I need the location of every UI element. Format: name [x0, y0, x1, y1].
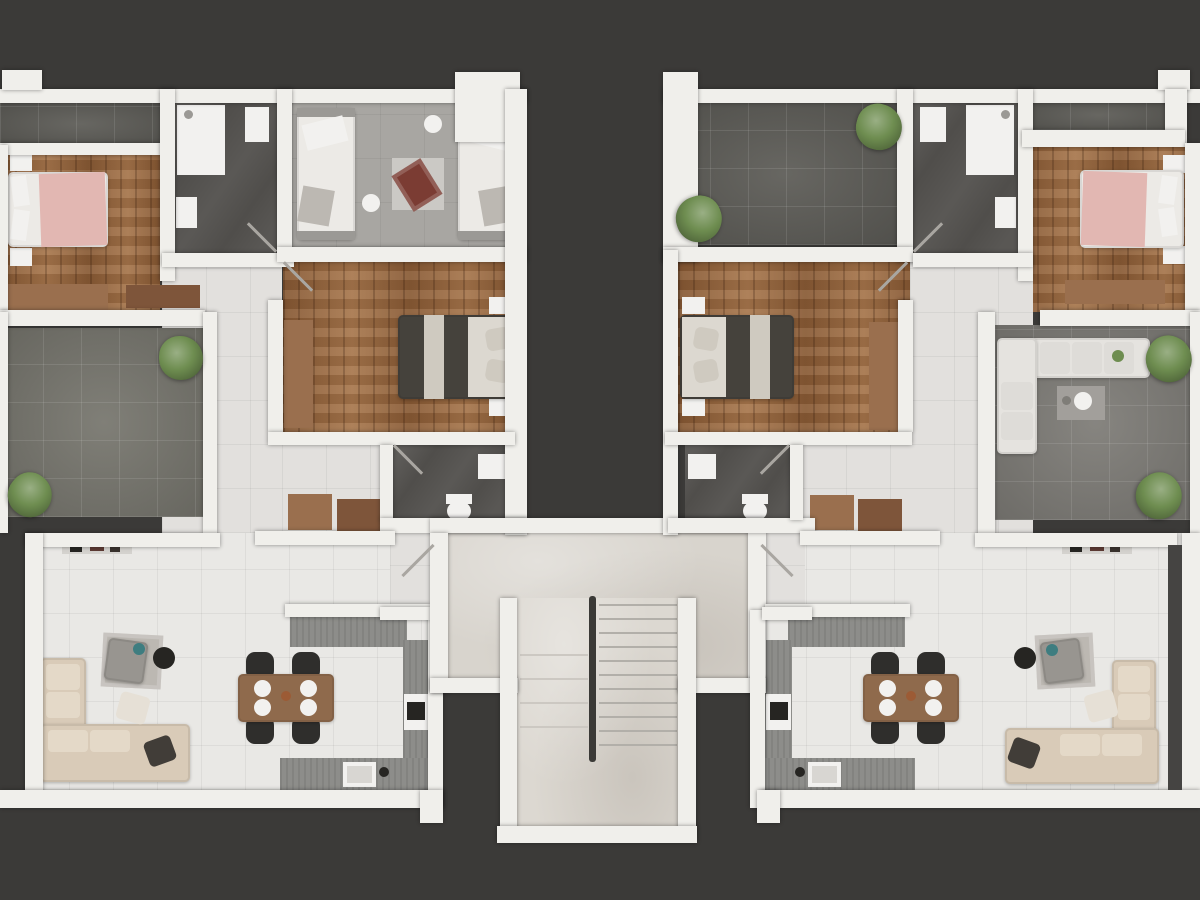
stair-tread: [599, 730, 677, 732]
stair-tread-faint: [520, 702, 588, 704]
sofa-cushion: [46, 664, 80, 690]
stair-tread: [599, 660, 677, 662]
terrace-strip-right-floor: [1032, 100, 1165, 130]
kitchen-counter: [290, 617, 407, 647]
shoe-cabinet: [858, 499, 902, 534]
wall: [2, 70, 42, 90]
wall: [1040, 310, 1200, 326]
side-table: [1014, 647, 1036, 669]
cushion-teal: [1046, 644, 1058, 656]
wall: [668, 518, 815, 533]
plate: [925, 680, 942, 697]
wall: [975, 533, 1177, 547]
sofa-cushion: [1060, 734, 1100, 756]
wall: [505, 89, 527, 535]
wall: [800, 531, 940, 545]
bed-pillow: [692, 358, 719, 384]
plate: [254, 680, 271, 697]
shower-head: [1001, 110, 1010, 119]
wall: [25, 533, 43, 795]
shoe-cabinet: [810, 495, 854, 530]
wall-shelf: [478, 454, 506, 479]
wardrobe: [869, 322, 898, 430]
bed-runner: [750, 315, 770, 399]
table-centerpiece: [281, 691, 291, 701]
cooktop: [770, 702, 788, 720]
stair-tread-faint: [520, 654, 588, 656]
nightstand: [682, 399, 705, 416]
plate: [879, 699, 896, 716]
sink-basin: [347, 766, 372, 783]
bed-throw: [297, 185, 335, 226]
stair-tread-faint: [520, 726, 588, 728]
plate: [925, 699, 942, 716]
bed-blanket-pink: [1081, 171, 1148, 247]
nightstand: [10, 153, 32, 171]
armchair: [1039, 637, 1084, 684]
dresser: [0, 284, 108, 310]
sofa-cushion: [1001, 412, 1033, 440]
wall: [25, 533, 220, 547]
shoe-cabinet: [288, 494, 332, 530]
table-tray: [1074, 392, 1092, 410]
shower-head: [184, 110, 193, 119]
side-table: [153, 647, 175, 669]
wall: [762, 790, 1200, 808]
sofa-cushion: [48, 730, 88, 752]
wall: [663, 247, 913, 262]
plate: [879, 680, 896, 697]
wall: [0, 312, 8, 533]
wall: [268, 300, 283, 432]
wall: [0, 145, 8, 312]
wall: [420, 790, 443, 823]
wall: [762, 607, 812, 620]
wall: [663, 89, 1200, 103]
wall: [277, 247, 527, 262]
pouf: [424, 115, 442, 133]
wall: [1158, 70, 1190, 90]
kitchen-counter: [788, 617, 905, 647]
stair-tread: [599, 604, 677, 606]
stair-tread: [599, 744, 677, 746]
wall: [750, 610, 765, 808]
wall: [380, 445, 393, 520]
wall: [897, 89, 913, 262]
wall: [663, 250, 678, 535]
stair-railing: [589, 596, 596, 762]
floor-plan-render: [0, 0, 1200, 900]
sofa-cushion: [1102, 734, 1142, 756]
washing-machine: [920, 107, 946, 142]
stair-tread: [599, 632, 677, 634]
stair-tread: [599, 674, 677, 676]
entry-corridor-right-floor: [762, 533, 805, 610]
wall-shelf: [688, 454, 716, 479]
wall: [0, 143, 162, 155]
table-centerpiece: [906, 691, 916, 701]
wall: [1182, 533, 1200, 795]
sofa-cushion: [1118, 694, 1150, 720]
wall: [1185, 143, 1200, 315]
kids-bed-headboard: [297, 108, 355, 117]
wall: [380, 607, 430, 620]
wall: [898, 300, 913, 432]
sofa-decor-plant: [1112, 350, 1124, 362]
wall: [203, 312, 217, 533]
plate: [300, 699, 317, 716]
bed-blanket-pink: [39, 172, 108, 247]
wall: [1022, 130, 1185, 147]
window-glass-band: [1168, 545, 1182, 790]
sofa-cushion: [1001, 382, 1033, 410]
wall: [500, 598, 517, 838]
plate: [300, 680, 317, 697]
wall: [790, 445, 803, 520]
sofa-cushion: [1040, 342, 1070, 374]
wall: [277, 89, 292, 262]
wall: [162, 253, 294, 267]
bed-pillow: [692, 326, 719, 352]
wardrobe: [284, 320, 313, 428]
wall: [1190, 312, 1200, 533]
washing-machine: [245, 107, 269, 142]
wall: [268, 432, 515, 445]
stair-tread: [599, 702, 677, 704]
wall: [913, 253, 1033, 267]
terrace-strip-left-floor: [0, 103, 160, 145]
sofa-cushion: [46, 692, 80, 718]
sofa-cushion: [90, 730, 130, 752]
wall: [255, 531, 395, 545]
dresser: [126, 285, 200, 308]
shoe-cabinet: [337, 499, 381, 534]
stair-tread: [599, 688, 677, 690]
wall: [978, 312, 995, 533]
potted-plant: [159, 336, 203, 380]
wall: [757, 790, 780, 823]
wall: [430, 533, 448, 693]
cushion-teal: [133, 643, 145, 655]
cooktop: [407, 702, 425, 720]
table-decor: [1062, 396, 1071, 405]
wall: [497, 826, 697, 843]
sink-basin: [812, 766, 837, 783]
sofa-cushion: [1072, 342, 1102, 374]
kids-bed-footboard: [297, 231, 355, 240]
wall: [678, 598, 696, 838]
pouf: [362, 194, 380, 212]
nightstand: [10, 248, 32, 266]
nightstand: [682, 297, 705, 314]
stair-tread: [599, 646, 677, 648]
stair-tread: [599, 716, 677, 718]
faucet: [379, 767, 389, 777]
stair-tread: [599, 618, 677, 620]
stair-tread-faint: [520, 678, 588, 680]
bathroom-sink: [995, 197, 1016, 228]
wall: [0, 790, 443, 808]
plate: [254, 699, 271, 716]
faucet: [795, 767, 805, 777]
bathroom-sink: [176, 197, 197, 228]
wall: [665, 432, 912, 445]
dresser: [1065, 280, 1165, 304]
sofa-cushion: [1118, 666, 1150, 692]
entry-corridor-left-floor: [390, 533, 433, 610]
wall: [0, 89, 527, 103]
nightstand: [1163, 246, 1185, 264]
wall: [0, 310, 205, 326]
bed-runner: [424, 315, 444, 399]
